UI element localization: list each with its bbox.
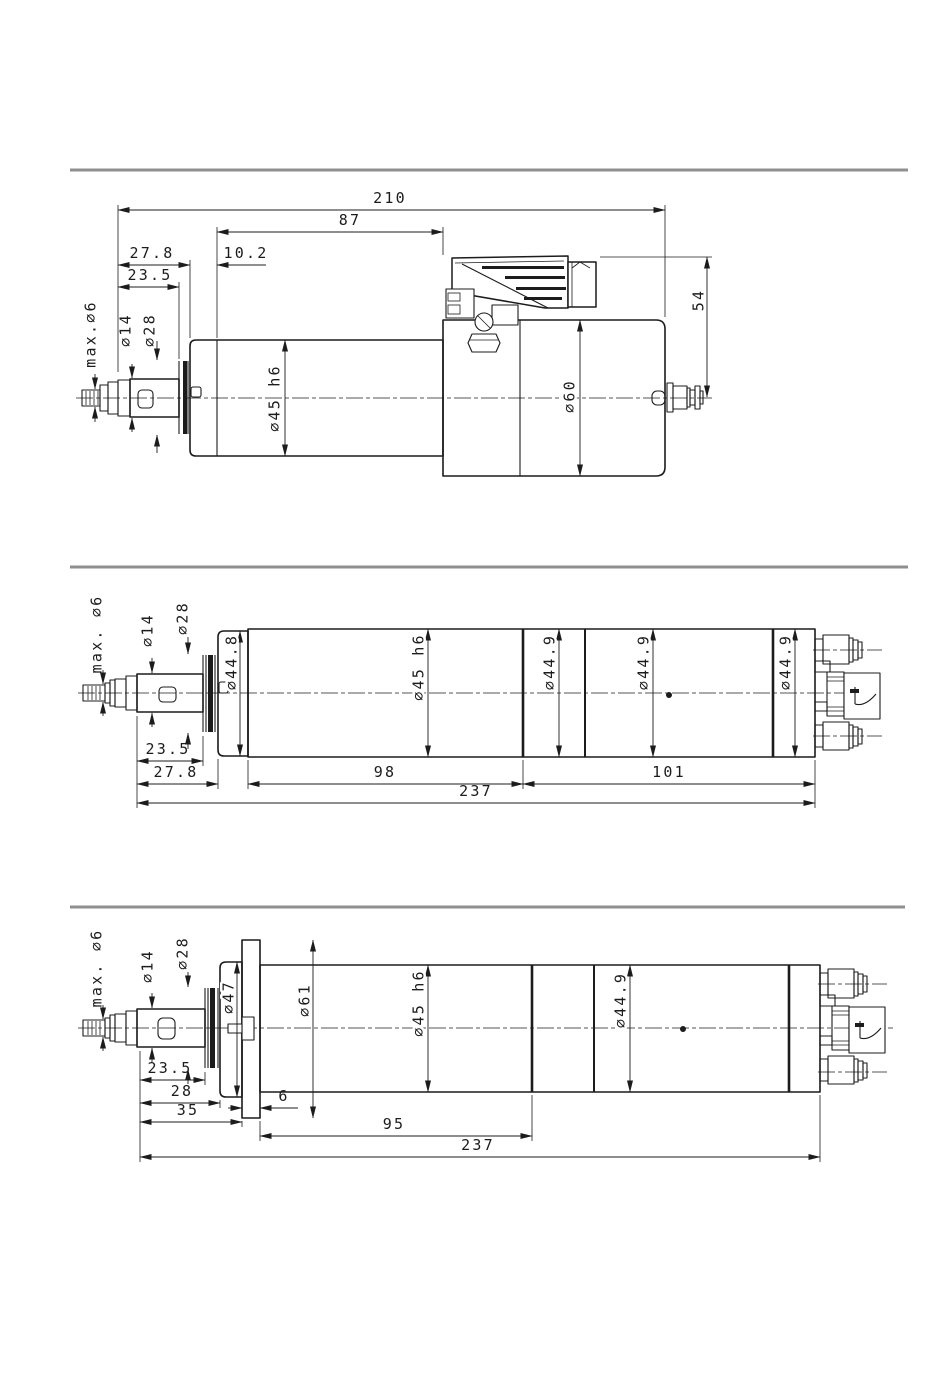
collar-rings <box>179 361 188 434</box>
dim-label-body-dia: ∅45 h6 <box>410 633 428 700</box>
dim-shaft-dia: max.∅6 <box>82 300 100 422</box>
dim-label-chuck-length: 23.5 <box>148 1059 193 1077</box>
dim-connector-height: 54 <box>600 257 712 397</box>
electrical-connector <box>815 661 880 719</box>
dim-flange-offset: 35 <box>140 1101 242 1127</box>
pneumatic-fitting-bottom <box>818 1056 887 1084</box>
elbow-fitting <box>492 305 518 325</box>
collar-rings <box>203 655 215 732</box>
center-hole-dot <box>680 1026 686 1032</box>
dim-chuck-dia: ∅14 <box>139 949 157 1062</box>
dim-label-rear-dia-1: ∅44.9 <box>541 634 559 690</box>
dim-collar-dia: ∅28 <box>174 601 192 749</box>
dim-body-section: 95 <box>260 1095 532 1141</box>
dim-label-flange-dia: ∅61 <box>296 983 314 1017</box>
dim-label-chuck-dia: ∅14 <box>139 949 157 983</box>
electrical-connector <box>820 995 885 1053</box>
drawing-page: 210 87 27.8 10.2 23.5 max.∅6 ∅14 <box>0 0 950 1387</box>
mounting-flange <box>228 940 260 1118</box>
dim-label-collar-dia: ∅28 <box>141 313 159 347</box>
pneumatic-fitting-top <box>818 969 887 998</box>
dim-shaft-dia: max. ∅6 <box>88 929 106 1051</box>
dim-label-total-length: 237 <box>459 782 493 800</box>
dim-body-length: 87 <box>217 211 443 338</box>
dim-rear-section: 101 <box>523 760 815 808</box>
dim-rear-dia: ∅44.9 <box>612 965 631 1092</box>
dim-label-motor-dia: ∅60 <box>561 379 579 413</box>
dim-label-cap-dia: ∅47 <box>220 980 238 1014</box>
dim-shaft-dia: max. ∅6 <box>88 595 106 716</box>
dim-label-chuck-dia: ∅14 <box>117 313 135 347</box>
dim-label-overall-length: 210 <box>373 189 407 207</box>
dim-label-rear-dia-3: ∅44.9 <box>777 634 795 690</box>
view-plain-housing: max. ∅6 ∅14 ∅28 ∅44.8 ∅45 h6 ∅44.9 <box>78 595 882 808</box>
dim-nose-step: 10.2 <box>217 244 268 265</box>
dim-label-total-length: 237 <box>461 1136 495 1154</box>
main-housing <box>260 965 820 1092</box>
dim-label-connector-height: 54 <box>690 289 708 311</box>
dim-chuck-length: 23.5 <box>137 716 203 808</box>
dim-label-nose-length: 27.8 <box>130 244 175 262</box>
dim-label-collar-dia: ∅28 <box>174 601 192 635</box>
pneumatic-fitting-bottom <box>813 722 882 750</box>
dim-label-chuck-dia: ∅14 <box>139 613 157 647</box>
dim-label-body-dia: ∅45 h6 <box>410 969 428 1036</box>
dim-nose-length: 27.8 <box>137 759 218 789</box>
dim-chuck-dia: ∅14 <box>139 613 157 727</box>
dim-collar-dia: ∅28 <box>141 313 159 453</box>
dim-label-cap-offset: 28 <box>171 1082 193 1100</box>
dim-label-chuck-length: 23.5 <box>146 740 191 758</box>
view-side-elevation: 210 87 27.8 10.2 23.5 max.∅6 ∅14 <box>76 189 712 476</box>
dim-label-flange-offset: 35 <box>177 1101 199 1119</box>
pneumatic-fitting-top <box>813 635 882 664</box>
dim-label-body-dia: ∅45 h6 <box>266 364 284 431</box>
dim-label-body-length: 87 <box>339 211 361 229</box>
rear-air-fitting <box>667 383 703 412</box>
dim-label-shaft-dia: max. ∅6 <box>88 595 106 674</box>
dim-chuck-dia: ∅14 <box>117 313 135 432</box>
technical-drawing-canvas: 210 87 27.8 10.2 23.5 max.∅6 ∅14 <box>0 0 950 1387</box>
dim-label-rear-dia: ∅44.9 <box>612 972 630 1028</box>
dim-total-length: 237 <box>137 782 815 803</box>
dim-label-cap-dia: ∅44.8 <box>223 634 241 690</box>
dim-body-dia: ∅45 h6 <box>266 340 286 456</box>
dim-label-flange-thickness: 6 <box>278 1087 289 1105</box>
dim-label-front-section: 98 <box>374 763 396 781</box>
dim-label-collar-dia: ∅28 <box>174 936 192 970</box>
dim-label-shaft-dia: max.∅6 <box>82 300 100 367</box>
dim-body-dia: ∅45 h6 <box>410 629 429 757</box>
dim-label-shaft-dia: max. ∅6 <box>88 929 106 1008</box>
dim-body-dia: ∅45 h6 <box>410 965 429 1092</box>
dim-label-rear-section: 101 <box>652 763 686 781</box>
dim-motor-dia: ∅60 <box>561 320 581 476</box>
center-hole-dot <box>666 692 672 698</box>
view-flange-housing: max. ∅6 ∅14 ∅28 ∅47 ∅61 ∅45 h6 ∅44 <box>78 929 893 1162</box>
dim-label-nose-step: 10.2 <box>224 244 269 262</box>
dim-label-nose-length: 27.8 <box>154 763 199 781</box>
hex-nut-icon <box>468 334 500 352</box>
dim-label-body-section: 95 <box>383 1115 405 1133</box>
dim-label-rear-dia-2: ∅44.9 <box>635 634 653 690</box>
dim-label-chuck-length: 23.5 <box>128 266 173 284</box>
